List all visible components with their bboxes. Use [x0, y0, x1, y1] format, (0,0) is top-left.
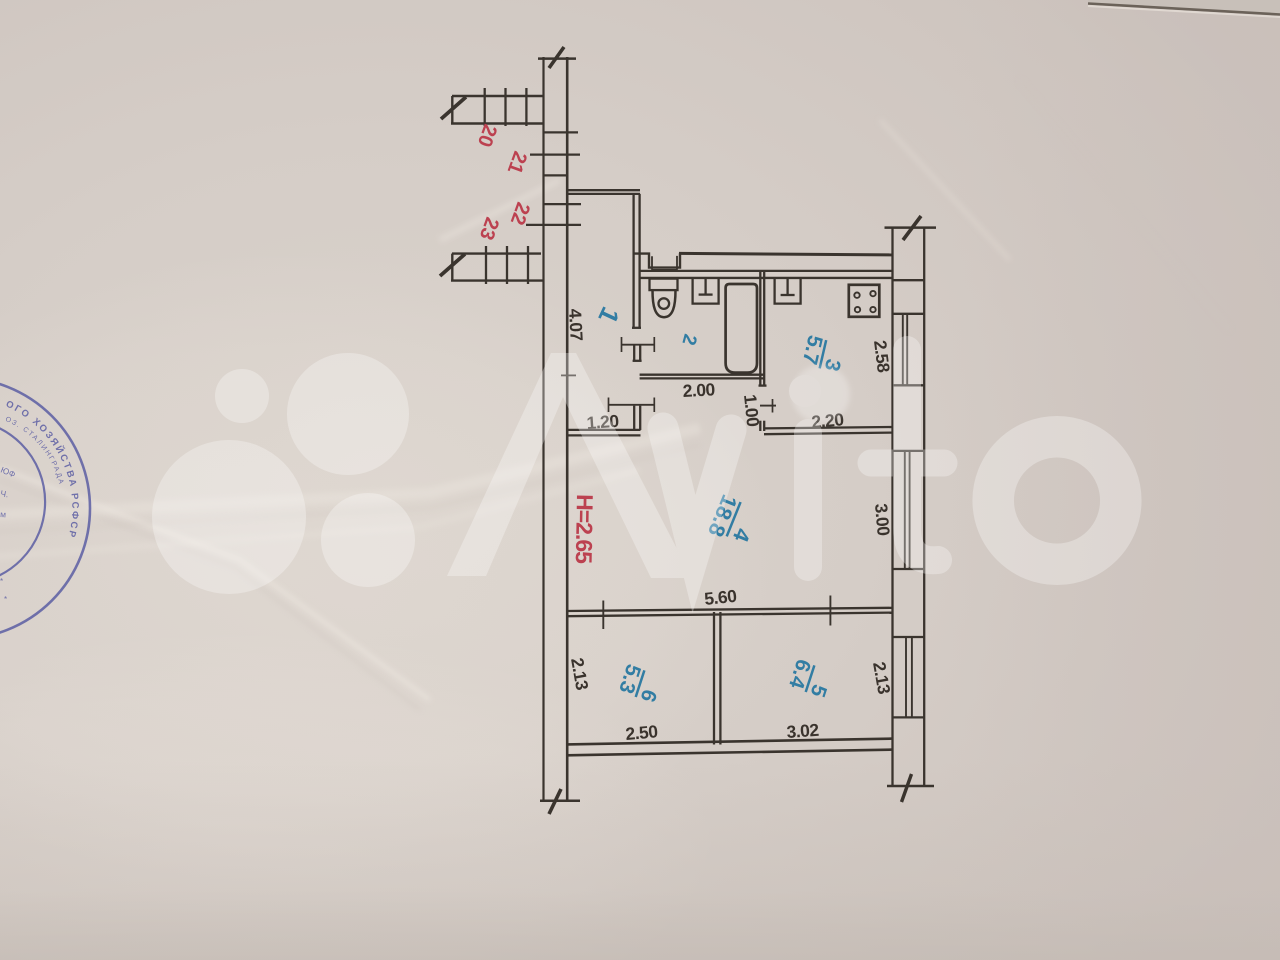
svg-text:3.00: 3.00	[871, 503, 894, 537]
svg-text:2.00: 2.00	[682, 379, 716, 401]
svg-text:*: *	[0, 577, 3, 586]
svg-text:2.58: 2.58	[870, 339, 894, 374]
svg-text:2.50: 2.50	[625, 721, 659, 744]
svg-text:3.02: 3.02	[786, 720, 820, 742]
svg-text:5.60: 5.60	[703, 586, 738, 609]
svg-text:4.07: 4.07	[565, 308, 587, 341]
svg-text:H=2.65: H=2.65	[571, 494, 598, 564]
svg-text:м: м	[0, 509, 7, 519]
svg-text:*: *	[4, 595, 7, 604]
